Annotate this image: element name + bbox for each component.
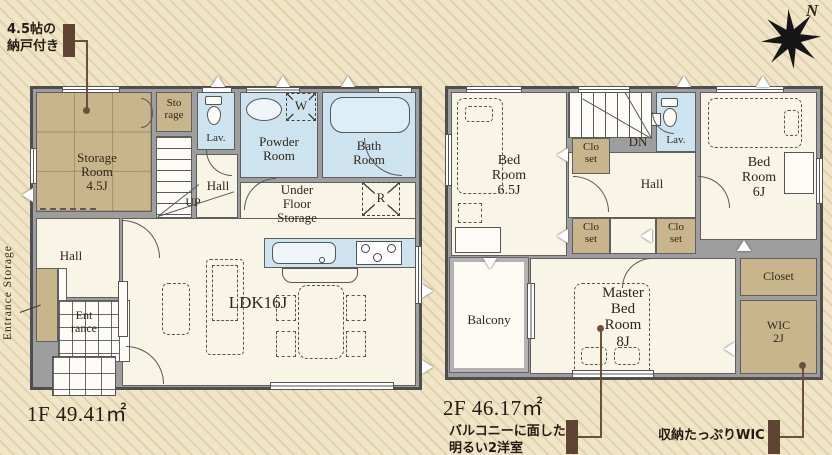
- window: [378, 87, 412, 93]
- window: [30, 148, 37, 184]
- window: [270, 382, 394, 390]
- sofa-table: [162, 283, 190, 335]
- kitchen-sink-icon: [272, 242, 336, 264]
- room-label: Hall: [630, 177, 674, 191]
- callout-line: [600, 330, 602, 438]
- floor2-area-label: 2F 46.17㎡: [443, 392, 543, 422]
- vent-icon: [276, 76, 290, 87]
- pillow-icon: [465, 106, 493, 122]
- fridge-letter: R: [375, 190, 388, 206]
- fridge-box: R: [362, 182, 400, 216]
- pillow-icon: [784, 110, 799, 136]
- stove-icon: [356, 241, 402, 265]
- washbasin-icon: [246, 98, 282, 121]
- callout-line: [780, 436, 804, 438]
- floor1-plan: W R Storage Room 4.5J Sto rage Lav. Powd…: [30, 86, 422, 390]
- room-label: Hall: [198, 179, 238, 193]
- burner-icon: [387, 244, 396, 253]
- room-label: UP: [176, 196, 210, 209]
- callout-wic-note: 収納たっぷりWIC: [658, 428, 765, 445]
- compass-north-label: N: [800, 2, 824, 20]
- floor1-area-label: 1F 49.41㎡: [27, 398, 127, 428]
- room-label: Ent rance: [61, 309, 107, 335]
- callout-tag: [63, 24, 75, 57]
- window: [466, 86, 522, 93]
- callout-line: [86, 40, 88, 110]
- chair-icon: [346, 331, 366, 357]
- vent-icon: [341, 76, 355, 87]
- entrance-storage-note: Entrance Storage: [2, 240, 14, 346]
- callout-tag: [768, 420, 780, 454]
- room-label: Hall: [50, 249, 92, 263]
- window: [415, 246, 422, 304]
- callout-dot: [597, 325, 604, 332]
- room-label: Clo set: [572, 142, 610, 166]
- room-label: Bed Room 6J: [733, 155, 785, 200]
- desk-icon: [784, 152, 814, 194]
- callout-tag: [566, 420, 578, 454]
- room-label: Balcony: [456, 313, 522, 327]
- window: [816, 158, 823, 204]
- vent-icon: [737, 240, 751, 251]
- faucet-icon: [319, 257, 325, 263]
- room-label: Closet: [740, 270, 817, 283]
- closet-dash-line: [40, 208, 96, 210]
- window: [716, 86, 784, 93]
- vent-icon: [557, 148, 568, 162]
- chair-icon: [346, 295, 366, 321]
- room-label: LDK16J: [221, 294, 295, 312]
- kitchen-island: [282, 268, 358, 283]
- room-label: Clo set: [572, 222, 610, 246]
- callout-line: [802, 366, 804, 438]
- toilet-tank-icon: [661, 98, 678, 107]
- callout-line: [578, 436, 602, 438]
- window: [445, 134, 452, 186]
- window: [62, 86, 120, 93]
- dining-table: [298, 285, 344, 359]
- vent-icon: [756, 76, 770, 87]
- washer-box: W: [286, 93, 316, 121]
- vent-icon: [211, 76, 225, 87]
- room-label: Storage Room 4.5J: [47, 151, 147, 193]
- window: [246, 87, 300, 93]
- callout-dot: [83, 107, 90, 114]
- room-label: Lav.: [656, 135, 696, 147]
- vent-icon: [677, 76, 691, 87]
- window: [572, 370, 654, 378]
- room-label: DN: [618, 135, 658, 149]
- tv-board: [118, 281, 128, 337]
- vent-icon: [422, 284, 433, 298]
- floor2-plan: Bed Room 6.5J DN Lav. Hall Clo set Clo s…: [445, 86, 823, 380]
- callout-dot: [799, 362, 806, 369]
- vent-icon: [724, 342, 735, 356]
- vent-icon: [557, 229, 568, 243]
- room-label: Clo set: [656, 222, 696, 246]
- burner-icon: [361, 244, 370, 253]
- window: [202, 87, 232, 93]
- washer-letter: W: [293, 98, 309, 114]
- room-label: Powder Room: [240, 135, 318, 163]
- window: [578, 86, 630, 93]
- bathtub-icon: [330, 97, 410, 133]
- room-label: Bed Room 6.5J: [476, 153, 542, 198]
- burner-icon: [373, 253, 382, 262]
- vent-icon: [641, 229, 652, 243]
- window: [527, 283, 535, 339]
- vent-icon: [422, 360, 433, 374]
- floorplan-image: W R Storage Room 4.5J Sto rage Lav. Powd…: [0, 0, 832, 455]
- desk-icon: [455, 227, 501, 253]
- callout-storage-note: 4.5帖の 納戸付き: [7, 22, 59, 56]
- toilet-tank-icon: [205, 96, 222, 105]
- stool-icon: [458, 203, 482, 223]
- porch: [52, 356, 116, 396]
- room-label: Sto rage: [156, 98, 192, 122]
- room-label: Lav.: [197, 133, 235, 145]
- vent-icon: [483, 258, 497, 269]
- vent-icon: [22, 188, 33, 202]
- room-label: Master Bed Room 8J: [578, 285, 668, 350]
- callout-bedrooms-note: バルコニーに面した 明るい2洋室: [449, 424, 566, 455]
- chair-icon: [276, 331, 296, 357]
- room-label: WIC 2J: [740, 319, 817, 345]
